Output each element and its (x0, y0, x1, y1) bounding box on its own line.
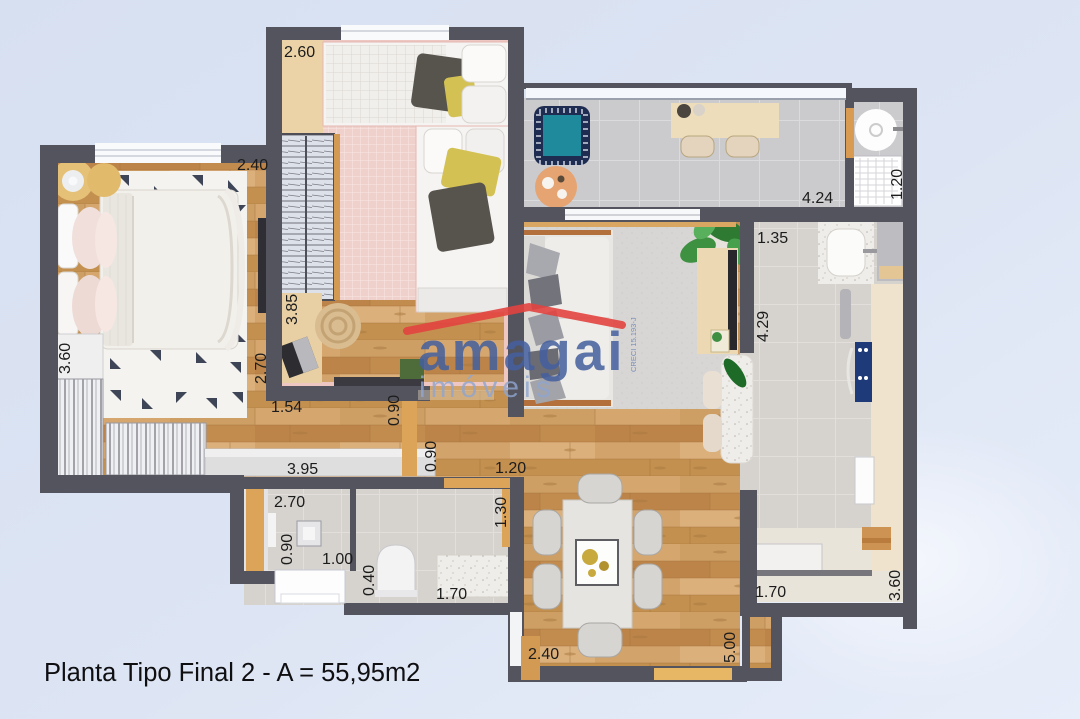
svg-text:2.60: 2.60 (284, 44, 315, 61)
svg-text:0.40: 0.40 (361, 565, 378, 596)
svg-text:1.00: 1.00 (322, 551, 353, 568)
svg-text:1.20: 1.20 (889, 169, 906, 200)
svg-text:2.40: 2.40 (237, 157, 268, 174)
svg-text:1.35: 1.35 (757, 230, 788, 247)
svg-text:4.24: 4.24 (802, 190, 833, 207)
svg-text:2.40: 2.40 (528, 646, 559, 663)
svg-text:CRECI 15.193-J: CRECI 15.193-J (629, 317, 638, 372)
svg-text:2.70: 2.70 (253, 353, 270, 384)
svg-text:0.90: 0.90 (386, 395, 403, 426)
svg-text:Planta Tipo Final 2 - A = 55,9: Planta Tipo Final 2 - A = 55,95m2 (44, 659, 420, 687)
svg-text:1.30: 1.30 (493, 497, 510, 528)
svg-text:5.00: 5.00 (722, 632, 739, 663)
svg-text:2.70: 2.70 (274, 494, 305, 511)
svg-text:imóveis: imóveis (419, 371, 556, 404)
svg-text:3.60: 3.60 (57, 343, 74, 374)
svg-text:1.70: 1.70 (436, 586, 467, 603)
svg-text:4.29: 4.29 (755, 311, 772, 342)
svg-text:0.90: 0.90 (279, 534, 296, 565)
svg-text:1.70: 1.70 (755, 584, 786, 601)
svg-text:3.60: 3.60 (887, 570, 904, 601)
svg-text:1.54: 1.54 (271, 399, 302, 416)
svg-text:3.95: 3.95 (287, 461, 318, 478)
svg-text:3.85: 3.85 (284, 294, 301, 325)
svg-text:0.90: 0.90 (423, 441, 440, 472)
svg-text:1.20: 1.20 (495, 460, 526, 477)
